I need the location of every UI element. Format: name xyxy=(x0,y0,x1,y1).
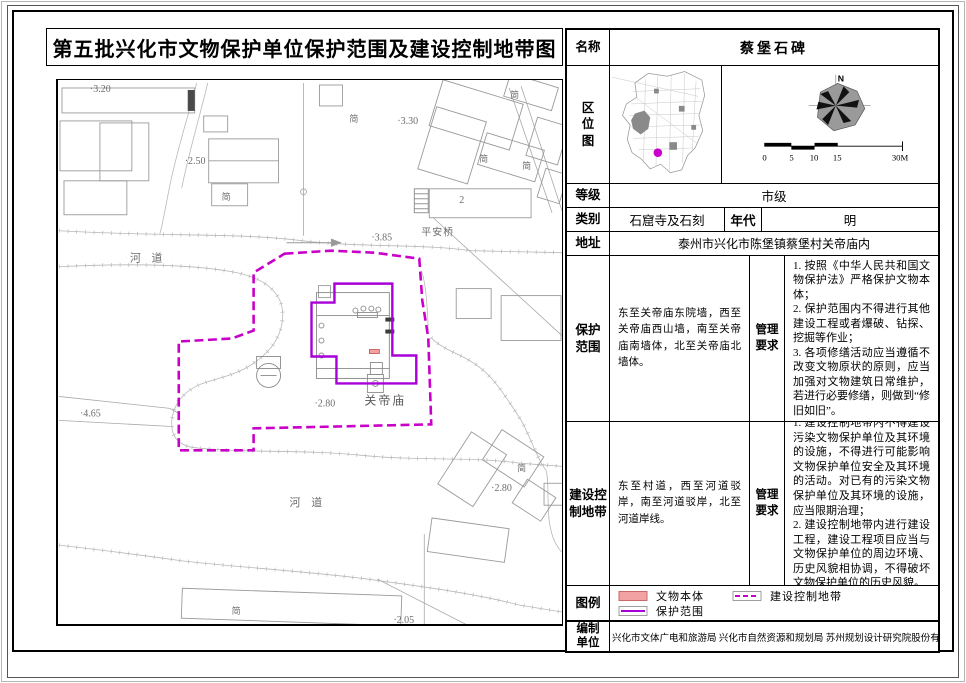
info-table: 名称 蔡堡石碑 区 位 图 xyxy=(565,28,940,653)
row-compiler: 编制 单位 兴化市文体广电和旅游局 兴化市自然资源和规划局 苏州规划设计研究院股… xyxy=(567,620,938,651)
river-bank-hatching xyxy=(59,231,562,612)
site-map: ·3.20 ·2.50 ·3.30 ·3.85 ·4.65 ·2.80 ·2.8… xyxy=(58,80,562,624)
row-protection-scope: 保护 范围 东至关帝庙东院墙，西至关帝庙西山墙，南至关帝庙南墙体，北至关帝庙北墙… xyxy=(567,256,938,422)
compiler-value: 兴化市文体广电和旅游局 兴化市自然资源和规划局 苏州规划设计研究院股份有限公司 xyxy=(612,630,936,644)
shed-label: 简 xyxy=(349,113,358,124)
protection-scope-cell: 东至关帝庙东院墙，西至关帝庙西山墙，南至关帝庙南墙体，北至关帝庙北墙体。 xyxy=(610,256,750,421)
compass-and-scalebar: N 0 5 10 15 30M xyxy=(722,67,938,182)
sheet-title-box: 第五批兴化市文物保护单位保护范围及建设控制地带图 xyxy=(46,28,563,66)
category-label: 类别 xyxy=(567,208,610,231)
legend-control-swatch xyxy=(732,590,762,602)
scale-tick-label: 5 xyxy=(789,153,793,163)
location-minimap-cell xyxy=(610,66,722,183)
building-number-label: 2 xyxy=(459,195,464,206)
protection-mgmt-cell: 1. 按照《中华人民共和国文物保护法》严格保护文物本体； 2. 保护范围内不得进… xyxy=(785,256,938,421)
shed-label: 简 xyxy=(232,605,241,616)
shed-label: 简 xyxy=(522,160,531,171)
address-value: 泰州市兴化市陈堡镇蔡堡村关帝庙内 xyxy=(678,235,870,252)
control-zone-cell: 东至村道，西至河道驳岸，南至河道驳岸，北至河道岸线。 xyxy=(610,422,750,585)
elevation-label: ·2.80 xyxy=(314,398,335,409)
compass-north-label: N xyxy=(838,73,844,83)
elevation-label: ·3.85 xyxy=(371,233,392,244)
temple-label: 关帝庙 xyxy=(364,392,406,407)
scale-tick-label: 10 xyxy=(810,153,819,163)
scale-tick-label: 15 xyxy=(833,153,842,163)
mgmt-item: 1. 建设控制地带内不得建设污染文物保护单位及其环境的设施，不得进行可能影响文物… xyxy=(793,422,930,518)
elevation-label: ·2.80 xyxy=(491,483,512,494)
shed-label: 简 xyxy=(479,153,488,164)
control-mgmt-label: 管理 要求 xyxy=(750,422,785,585)
row-control-zone: 建设控 制地带 东至村道，西至河道驳岸，南至河道驳岸，北至河道岸线。 管理 要求… xyxy=(567,422,938,586)
bridge xyxy=(414,189,428,213)
row-category: 类别 石窟寺及石刻 年代 明 xyxy=(567,208,938,232)
site-location-dot xyxy=(654,148,663,157)
row-address: 地址 泰州市兴化市陈堡镇蔡堡村关帝庙内 xyxy=(567,232,938,256)
address-label: 地址 xyxy=(567,232,610,255)
legend-protection-label: 保护范围 xyxy=(656,603,704,619)
row-location: 区 位 图 xyxy=(567,66,938,184)
river-label: 河 道 xyxy=(130,251,167,265)
protection-scope-text: 东至关帝庙东院墙，西至关帝庙西山墙，南至关帝庙南墙体，北至关帝庙北墙体。 xyxy=(618,306,741,371)
river-label: 河 道 xyxy=(290,495,327,509)
mgmt-item: 2. 保护范围内不得进行其他建设工程或者爆破、钻探、挖掘等作业； xyxy=(793,302,930,346)
bridge-label: 平安桥 xyxy=(421,226,454,239)
location-label: 区 位 图 xyxy=(567,66,610,183)
map-labels: ·3.20 ·2.50 ·3.30 ·3.85 ·4.65 ·2.80 ·2.8… xyxy=(80,84,531,624)
row-name: 名称 蔡堡石碑 xyxy=(567,30,938,66)
shed-label: 简 xyxy=(517,462,526,473)
row-legend: 图例 文物本体 建设控制地带 xyxy=(567,586,938,620)
flow-arrow-icon xyxy=(287,239,341,246)
era-value: 明 xyxy=(844,210,857,229)
temple-complex xyxy=(316,293,389,393)
control-zone-label: 建设控 制地带 xyxy=(567,422,610,585)
location-minimap xyxy=(612,67,719,182)
elevation-label: ·4.65 xyxy=(80,408,101,419)
scale-bar: 0 5 10 15 30M xyxy=(762,141,908,162)
compiler-label: 编制 单位 xyxy=(567,622,610,651)
compass-rose-icon: N xyxy=(809,73,871,130)
legend-protection-swatch xyxy=(618,605,648,617)
heritage-body-marker xyxy=(369,350,379,354)
name-value: 蔡堡石碑 xyxy=(740,38,808,58)
name-label: 名称 xyxy=(567,30,610,65)
control-mgmt-cell: 1. 建设控制地带内不得建设污染文物保护单位及其环境的设施，不得进行可能影响文物… xyxy=(785,422,938,585)
protection-mgmt-label: 管理 要求 xyxy=(750,256,785,421)
shed-label: 简 xyxy=(222,191,231,202)
compass-scale-cell: N 0 5 10 15 30M xyxy=(722,66,938,183)
scale-tick-label: 30M xyxy=(892,153,909,163)
era-label: 年代 xyxy=(725,208,762,231)
row-grade: 等级 市级 xyxy=(567,184,938,208)
mgmt-item: 2. 建设控制地带内进行建设工程，建设工程项目应当与文物保护单位的周边环境、历史… xyxy=(793,518,930,585)
legend-label: 图例 xyxy=(567,586,610,620)
grade-value: 市级 xyxy=(761,186,786,205)
control-zone-text: 东至村道，西至河道驳岸，南至河道驳岸，北至河道岸线。 xyxy=(618,479,741,528)
elevation-label: ·3.30 xyxy=(397,116,418,127)
legend-control-label: 建设控制地带 xyxy=(770,588,842,604)
category-value: 石窟寺及石刻 xyxy=(629,210,704,229)
shed-label: 简 xyxy=(510,89,519,100)
building-dark-end xyxy=(188,90,195,111)
legend-heritage-swatch xyxy=(618,590,648,602)
mgmt-item: 3. 各项修缮活动应当遵循不改变文物原状的原则，应当加强对文物建筑日常维护，若进… xyxy=(793,346,930,419)
sheet-title: 第五批兴化市文物保护单位保护范围及建设控制地带图 xyxy=(53,33,557,62)
legend-cell: 文物本体 建设控制地带 保护范围 xyxy=(610,586,938,620)
grade-label: 等级 xyxy=(567,184,610,207)
elevation-label: ·2.50 xyxy=(185,156,206,167)
mgmt-item: 1. 按照《中华人民共和国文物保护法》严格保护文物本体； xyxy=(793,259,930,303)
well-structure xyxy=(257,356,281,387)
legend-heritage-label: 文物本体 xyxy=(656,588,704,604)
scale-tick-label: 0 xyxy=(762,153,767,163)
protection-scope-label: 保护 范围 xyxy=(567,256,610,421)
heritage-protection-map-sheet: 第五批兴化市文物保护单位保护范围及建设控制地带图 xyxy=(0,0,966,683)
elevation-label: ·2.05 xyxy=(393,615,414,624)
site-map-box: ·3.20 ·2.50 ·3.30 ·3.85 ·4.65 ·2.80 ·2.8… xyxy=(56,79,563,626)
elevation-label: ·3.20 xyxy=(90,84,111,95)
